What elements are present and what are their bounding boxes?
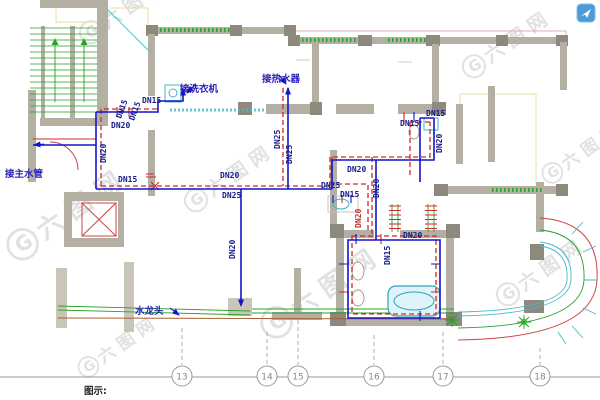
legend-label: 图示: [84, 386, 107, 397]
pipe-size-label: DN15 [118, 175, 137, 184]
pipe-size-label: DN15 [426, 109, 445, 118]
bathtub [388, 286, 440, 316]
pipe-size-label: DN15 [400, 119, 419, 128]
grid-axis-number: 16 [368, 373, 380, 383]
site-logo [577, 4, 595, 22]
pipe-size-label: DN20 [372, 179, 381, 198]
watermark-text: G 六图网 [539, 117, 600, 188]
watermark-text: G 六图网 [75, 311, 164, 382]
pipe-size-label: DN20 [111, 121, 130, 130]
annotation-faucet: 水龙头 [135, 305, 164, 317]
sink [352, 290, 364, 306]
pipe-size-label: DN20 [435, 134, 444, 153]
shower [424, 118, 438, 130]
annotation-water-heater: 接热水器 [262, 73, 301, 85]
svg-text:六图网: 六图网 [558, 117, 600, 174]
toilet [352, 262, 364, 280]
annotation-washing-machine: 接洗衣机 [180, 83, 219, 95]
svg-text:六图网: 六图网 [480, 4, 557, 68]
grid-axis-number: 18 [534, 373, 546, 383]
pipe-size-label: DN20 [403, 231, 422, 240]
pipe-size-label: DN15 [383, 246, 392, 265]
pipe-size-label: DN20 [228, 240, 237, 259]
floor-plan-canvas: G 六图网 G 六图网 G 六图网 G 六图网 G 六图网 G 六图网 G 六图… [0, 0, 600, 400]
pipe-size-label: DN15 [127, 100, 142, 121]
washing-machine [165, 85, 181, 102]
pipe-size-label: DN20 [347, 165, 366, 174]
grid-axis-number: 17 [437, 373, 448, 383]
grid-axis-number: 13 [176, 373, 187, 383]
radiator-symbol [425, 204, 437, 232]
door-swing-arc [50, 142, 78, 170]
watermark-text: G 六图网 [256, 238, 389, 344]
plant-symbol [517, 315, 531, 329]
pipe-size-label: DN15 [340, 190, 359, 199]
pipe-size-label: DN25 [321, 181, 340, 190]
annotation-main-water-pipe: 接主水管 [5, 168, 44, 180]
grid-axis-number: 14 [261, 373, 273, 383]
pipe-size-label: DN15 [142, 96, 161, 105]
pipe-size-label: DN20 [354, 209, 363, 228]
pipe-size-label: DN25 [222, 191, 241, 200]
svg-text:六图网: 六图网 [514, 232, 591, 296]
grid-axis-number: 15 [292, 373, 303, 383]
screenshot-root: G 六图网 G 六图网 G 六图网 G 六图网 G 六图网 G 六图网 G 六图… [0, 0, 600, 400]
pipe-size-label: DN25 [285, 145, 294, 164]
plant-symbol [445, 313, 459, 327]
pipe-size-label: DN25 [273, 130, 282, 149]
radiator-symbol [389, 204, 401, 232]
pipe-size-label: DN20 [220, 171, 239, 180]
pipe-size-label: DN20 [99, 144, 108, 163]
